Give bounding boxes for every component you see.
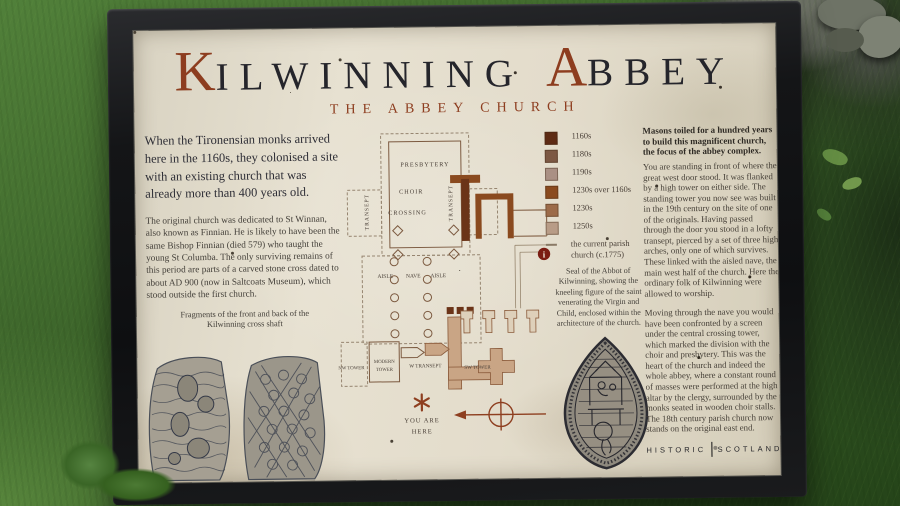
plan-label-nave: NAVE [406, 273, 421, 279]
compass-icon [454, 398, 546, 431]
legend-swatch-1160s [545, 132, 558, 145]
you-are-here-marker-icon [415, 394, 429, 410]
sign-board: K ILWINNING A BBEY THE ABBEY CHURCH When… [133, 23, 780, 483]
cross-shaft-back-drawing [243, 356, 325, 479]
plan-arcade-piers [461, 310, 539, 333]
dirt-specks [133, 31, 136, 34]
title-initial-a: A [546, 38, 588, 95]
abbey-floor-plan: PRESBYTERY CHOIR CROSSING TRANSEPT TRANS… [330, 118, 564, 479]
title-line: K ILWINNING A BBEY [133, 36, 776, 101]
plan-label-modern-tower: TOWER [376, 368, 394, 373]
legend-label: 1190s [572, 167, 592, 178]
legend-swatch-1190s [545, 168, 558, 181]
legend-label: 1160s [572, 131, 592, 142]
you-are-here-line2: HERE [412, 428, 433, 435]
plan-standing-remains [445, 174, 548, 314]
right-paragraph-1: You are standing in front of where the g… [643, 160, 781, 299]
seal-caption: Seal of the Abbot of Kilwinning, showing… [550, 266, 647, 330]
leaf [820, 145, 849, 169]
title-word-bbey: BBEY [587, 52, 735, 93]
legend-label: 1250s [573, 221, 593, 232]
grass-tuft [96, 468, 176, 502]
right-paragraph-2: Moving through the nave you would have b… [645, 306, 781, 434]
title-word-ilwinning: ILWINNING [215, 54, 524, 97]
right-lead-paragraph: Masons toiled for a hundred years to bui… [642, 124, 778, 158]
right-text-column: Masons toiled for a hundred years to bui… [642, 124, 780, 434]
legend-swatch-1230s-over-1160s [545, 186, 558, 199]
plan-label-presbytery: PRESBYTERY [400, 161, 449, 169]
subtitle: THE ABBEY CHURCH [134, 97, 776, 121]
logo-word-scotland: SCOTLAND [718, 444, 781, 454]
plan-label-sw-tower: SW TOWER [464, 366, 491, 371]
legend-row: 1230s over 1160s [545, 185, 649, 199]
legend-line-symbol [546, 244, 557, 246]
legend-label: 1180s [572, 149, 592, 160]
cross-shaft-drawings [143, 350, 337, 482]
historic-scotland-logo: HISTORIC SCOTLAND [646, 441, 780, 458]
legend-swatch-1180s [545, 150, 558, 163]
rock [858, 16, 900, 58]
legend-label: 1230s [572, 203, 592, 214]
leaf [815, 206, 833, 223]
legend-swatch-1250s [546, 222, 559, 235]
leaf [841, 176, 863, 192]
title-initial-k: K [174, 43, 216, 100]
plan-label-aisle-right: AISLE [430, 273, 446, 279]
plan-label-w-transept: W TRANSEPT [409, 363, 442, 369]
plan-label-aisle-left: AISLE [377, 274, 393, 280]
plan-label-transept-right: TRANSEPT [448, 185, 454, 221]
cross-shaft-caption: Fragments of the front and back of the K… [179, 308, 311, 331]
historic-scotland-mark-icon [711, 442, 713, 457]
plan-label-transept-left: TRANSEPT [364, 194, 370, 230]
cross-shaft-front-drawing [148, 357, 230, 481]
you-are-here-line1: YOU ARE [404, 417, 439, 424]
legend-label: 1230s over 1160s [572, 185, 631, 197]
page-title: K ILWINNING A BBEY THE ABBEY CHURCH [133, 36, 776, 121]
plan-label-nw-tower: NW TOWER [338, 366, 365, 371]
legend-row: 1160s [545, 131, 649, 145]
abbot-seal-drawing [557, 335, 655, 472]
rock [826, 28, 864, 52]
legend-row: 1180s [545, 149, 649, 163]
logo-word-historic: HISTORIC [646, 445, 706, 455]
history-paragraph: The original church was dedicated to St … [146, 213, 343, 302]
legend-row: 1190s [545, 167, 649, 181]
plan-label-modern: MODERN [374, 360, 395, 365]
plan-label-choir: CHOIR [399, 188, 423, 195]
legend-label: the current parish church (c.1775) [571, 239, 650, 262]
legend-row: the current parish church (c.1775) [546, 239, 650, 262]
information-sign: K ILWINNING A BBEY THE ABBEY CHURCH When… [107, 1, 807, 505]
plan-label-crossing: CROSSING [388, 209, 427, 216]
left-text-column: When the Tironensian monks arrived here … [145, 130, 343, 332]
intro-paragraph: When the Tironensian monks arrived here … [145, 130, 342, 203]
legend-row: 1250s [546, 221, 650, 235]
plan-legend: 1160s 1180s 1190s 1230s over 1160s 1230s… [545, 131, 651, 267]
legend-row: 1230s [545, 203, 649, 217]
legend-swatch-1230s [545, 204, 558, 217]
